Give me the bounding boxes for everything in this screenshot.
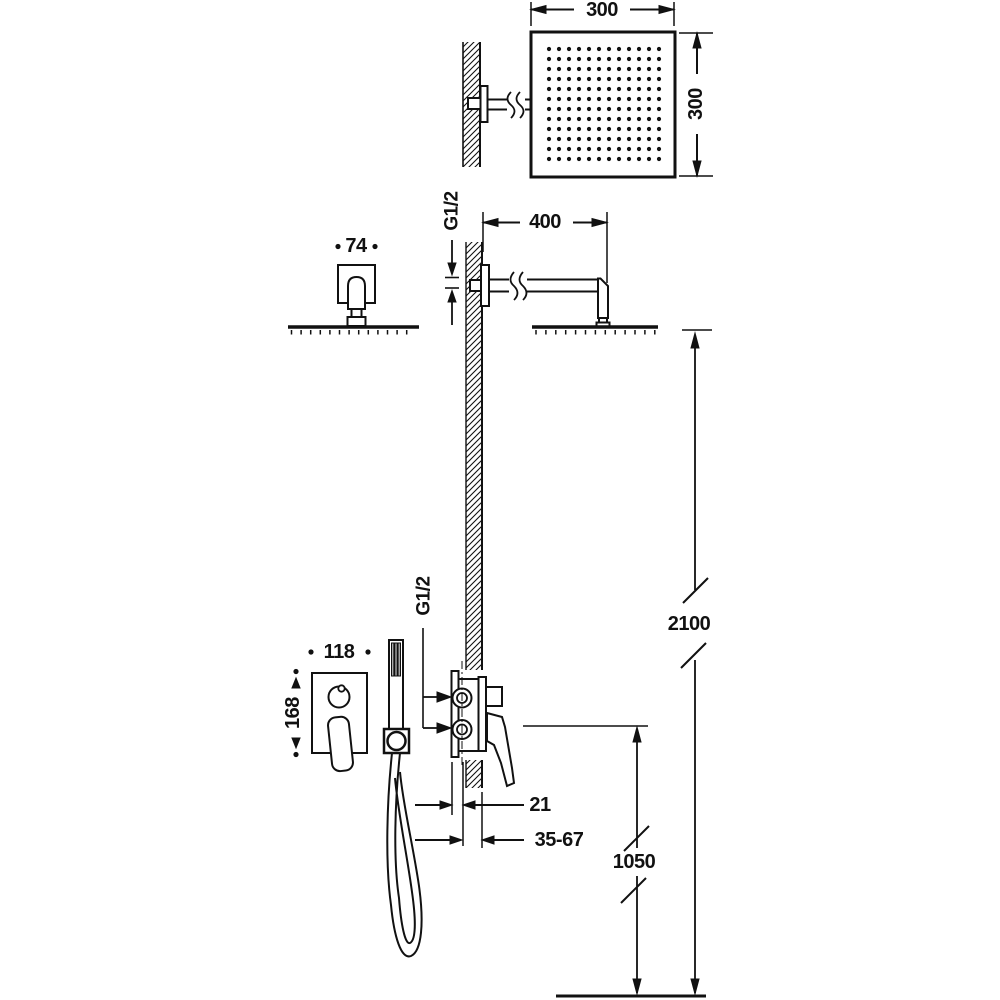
nozzle-dot	[557, 137, 561, 141]
arrowhead	[691, 979, 699, 994]
handshower-nozzle-face	[392, 643, 401, 676]
bracket-ring	[388, 732, 406, 750]
arrowhead	[450, 836, 462, 844]
arrowhead	[448, 263, 456, 275]
nozzle-dot	[597, 157, 601, 161]
nozzle-dot	[617, 77, 621, 81]
nozzle-dot	[647, 147, 651, 151]
nozzle-dot	[627, 157, 631, 161]
arrowhead	[592, 219, 607, 227]
nozzle-dot	[547, 77, 551, 81]
nozzle-dot	[547, 127, 551, 131]
dim-arm-length-label: 400	[527, 212, 563, 232]
dim-wall-offset-label: 21	[527, 795, 552, 815]
nozzle-dot	[607, 137, 611, 141]
nozzle-dot	[587, 147, 591, 151]
nozzle-dot	[647, 87, 651, 91]
valve-front-plate	[479, 677, 487, 751]
nozzle-dot	[637, 97, 641, 101]
nozzle-dot	[557, 107, 561, 111]
nozzle-dot	[647, 57, 651, 61]
nozzle-dot	[637, 137, 641, 141]
nozzle-dot	[577, 107, 581, 111]
arrowhead	[463, 801, 475, 809]
nozzle-dot	[557, 77, 561, 81]
nozzle-dot	[587, 107, 591, 111]
head-nozzle-ticks	[536, 330, 655, 335]
nozzle-dot	[567, 47, 571, 51]
nozzle-dot	[547, 87, 551, 91]
nozzle-dot	[617, 147, 621, 151]
nozzle-dot	[567, 127, 571, 131]
nozzle-dot	[637, 57, 641, 61]
nozzle-dot	[597, 87, 601, 91]
hand-shower	[384, 640, 422, 956]
dimension-dot	[293, 752, 298, 757]
nozzle-dot	[587, 97, 591, 101]
arm-pipe-in-wall	[470, 280, 481, 291]
nozzle-dot	[637, 157, 641, 161]
valve-mounting-plate	[452, 671, 459, 757]
nozzle-dot	[607, 97, 611, 101]
nozzle-dot	[627, 117, 631, 121]
dim-trim-height-label: 168	[283, 695, 303, 731]
nozzle-dot	[597, 97, 601, 101]
arrowhead	[292, 738, 300, 748]
nozzle-dot	[637, 67, 641, 71]
nozzle-dot	[637, 147, 641, 151]
nozzle-dot	[597, 77, 601, 81]
arrowhead	[482, 836, 494, 844]
nozzle-dot	[577, 87, 581, 91]
dimension-head-floor-height	[681, 330, 712, 994]
nozzle-dot	[547, 97, 551, 101]
nozzle-dot	[627, 107, 631, 111]
valve-thread-label: G1/2	[415, 574, 434, 617]
nozzle-dot	[577, 97, 581, 101]
nozzle-dot	[557, 47, 561, 51]
nozzle-dot	[577, 117, 581, 121]
dim-head-height-label: 300	[686, 86, 706, 122]
dim-escutcheon-label: 74	[343, 236, 368, 256]
valve-diverter	[486, 687, 502, 706]
nozzle-dot	[597, 47, 601, 51]
dimension-dot	[293, 669, 298, 674]
nozzle-dot	[567, 147, 571, 151]
nozzle-dot	[587, 137, 591, 141]
nozzle-dot	[607, 127, 611, 131]
arrowhead	[437, 692, 451, 702]
arrowhead	[693, 161, 701, 176]
nozzle-dot	[607, 157, 611, 161]
arrowhead	[292, 678, 300, 688]
nozzle-dot	[577, 77, 581, 81]
arm-escutcheon-front-view	[288, 244, 419, 335]
arrowhead	[659, 6, 674, 14]
arrowhead	[483, 219, 498, 227]
drawing-linework	[0, 0, 1000, 1000]
dimension-dot	[372, 244, 377, 249]
nozzle-dot	[647, 157, 651, 161]
nozzle-dot	[547, 67, 551, 71]
nozzle-dot	[617, 137, 621, 141]
nozzle-dot	[617, 57, 621, 61]
nozzle-dot	[647, 107, 651, 111]
nozzle-dot	[597, 117, 601, 121]
nozzle-dot	[567, 67, 571, 71]
nozzle-dot	[617, 127, 621, 131]
nozzle-dot	[587, 47, 591, 51]
nozzle-dot	[617, 97, 621, 101]
arrowhead	[531, 6, 546, 14]
nozzle-dot	[617, 67, 621, 71]
nozzle-dot	[617, 117, 621, 121]
nozzle-dot	[637, 117, 641, 121]
head-nozzle-ticks	[292, 330, 407, 335]
nozzle-dot	[597, 107, 601, 111]
nozzle-dot	[627, 97, 631, 101]
nozzle-dot	[557, 57, 561, 61]
nozzle-dot	[567, 97, 571, 101]
nozzle-dot	[607, 107, 611, 111]
dimension-dot	[335, 244, 340, 249]
break-slash	[621, 878, 646, 903]
nozzle-dot	[557, 87, 561, 91]
nozzle-dot	[627, 47, 631, 51]
nozzle-dot	[607, 67, 611, 71]
nozzle-dot	[657, 147, 661, 151]
nozzle-dot	[587, 87, 591, 91]
arm-flange	[481, 86, 488, 122]
nozzle-dot	[567, 57, 571, 61]
nozzle-dot	[577, 127, 581, 131]
nozzle-dot	[657, 157, 661, 161]
nozzle-dot	[547, 47, 551, 51]
nozzle-dot	[627, 147, 631, 151]
arrowhead	[437, 723, 451, 733]
nozzle-dot	[637, 77, 641, 81]
nozzle-dot	[617, 107, 621, 111]
break-slash	[681, 643, 706, 668]
nozzle-dot	[557, 117, 561, 121]
nozzle-dot	[567, 137, 571, 141]
nozzle-dot	[627, 127, 631, 131]
nozzle-dot	[607, 117, 611, 121]
nozzle-dot	[637, 107, 641, 111]
nozzle-dot	[627, 77, 631, 81]
nozzle-dot	[657, 137, 661, 141]
nozzle-dot	[647, 67, 651, 71]
dim-install-depth-label: 35-67	[533, 830, 586, 850]
nozzle-dot	[557, 67, 561, 71]
nozzle-dot	[647, 127, 651, 131]
nozzle-dot	[657, 97, 661, 101]
nozzle-dot	[617, 87, 621, 91]
dimension-dot	[365, 649, 370, 654]
dimension-arm-thread	[445, 240, 459, 325]
nozzle-dot	[647, 137, 651, 141]
nozzle-dot	[547, 107, 551, 111]
nozzle-dot	[587, 127, 591, 131]
nozzle-dot	[547, 147, 551, 151]
nozzle-dot	[557, 157, 561, 161]
nozzle-dot	[657, 67, 661, 71]
nozzle-dot	[577, 57, 581, 61]
nozzle-dot	[567, 87, 571, 91]
nozzle-dot	[587, 157, 591, 161]
nozzle-dot	[657, 47, 661, 51]
nozzle-dot	[657, 77, 661, 81]
shower-arm-side-view	[470, 265, 658, 335]
nozzle-dot	[547, 157, 551, 161]
nozzle-dot	[557, 147, 561, 151]
nozzle-dot	[637, 47, 641, 51]
nozzle-dot	[607, 147, 611, 151]
nozzle-dot	[557, 97, 561, 101]
arrowhead	[633, 727, 641, 742]
nozzle-dot	[617, 47, 621, 51]
nozzle-dot	[597, 57, 601, 61]
nozzle-dot	[567, 117, 571, 121]
nozzle-dot	[657, 87, 661, 91]
dimension-dot	[308, 649, 313, 654]
nozzle-dot	[637, 127, 641, 131]
nozzle-dot	[607, 47, 611, 51]
nozzle-dot	[657, 117, 661, 121]
nozzle-dot	[597, 137, 601, 141]
nozzle-dot	[577, 157, 581, 161]
knob-notch	[338, 685, 344, 691]
nozzle-dot	[647, 77, 651, 81]
arrowhead	[693, 33, 701, 48]
arrowhead	[691, 333, 699, 348]
nozzle-dot	[577, 137, 581, 141]
dim-head-floor-height-label: 2100	[666, 614, 713, 634]
nozzle-dot	[647, 97, 651, 101]
nozzle-dot	[547, 137, 551, 141]
nozzle-dot	[657, 107, 661, 111]
rain-head-front-view	[531, 32, 675, 177]
nozzle-dot	[607, 77, 611, 81]
nozzle-dot	[657, 127, 661, 131]
nozzle-dot	[577, 147, 581, 151]
nozzle-dot	[567, 157, 571, 161]
nozzle-dot	[577, 47, 581, 51]
arrowhead	[440, 801, 452, 809]
nozzle-dot	[587, 57, 591, 61]
nozzle-dot	[637, 87, 641, 91]
nozzle-dot	[567, 107, 571, 111]
nozzle-dot	[657, 57, 661, 61]
nozzle-dot	[627, 87, 631, 91]
nozzle-dot	[597, 147, 601, 151]
arrowhead	[633, 979, 641, 994]
arm-flange	[481, 265, 489, 306]
nozzle-dot	[607, 57, 611, 61]
mixer-lever-front	[327, 716, 354, 772]
nozzle-dot	[567, 77, 571, 81]
nozzle-dot	[587, 77, 591, 81]
nozzle-dot	[607, 87, 611, 91]
technical-drawing-canvas: 300 300 74 G1/2 400 2100 118 168 G1/2 21…	[0, 0, 1000, 1000]
mixer-trim-front-view	[308, 649, 370, 771]
arm-thread-label: G1/2	[443, 189, 462, 232]
arm-profile	[348, 277, 365, 309]
nozzle-dot	[577, 67, 581, 71]
nozzle-dot	[597, 67, 601, 71]
nozzle-dot	[547, 117, 551, 121]
nozzle-dot	[627, 67, 631, 71]
dimension-valve-thread	[423, 628, 451, 733]
dim-valve-height-label: 1050	[611, 852, 658, 872]
arm-pipe-in-wall	[468, 98, 481, 109]
nozzle-dot	[647, 117, 651, 121]
arm-elbow	[598, 279, 608, 319]
nozzle-dot	[587, 117, 591, 121]
dim-head-width-label: 300	[584, 0, 620, 20]
arrowhead	[448, 291, 456, 303]
nozzle-dot	[627, 137, 631, 141]
nozzle-dot	[547, 57, 551, 61]
nozzle-dot	[647, 47, 651, 51]
nozzle-dot	[587, 67, 591, 71]
dim-trim-width-label: 118	[322, 642, 357, 662]
nozzle-dot	[617, 157, 621, 161]
nozzle-dot	[557, 127, 561, 131]
nozzle-dot	[597, 127, 601, 131]
hose-outer-edge	[387, 753, 421, 956]
nozzle-dot	[627, 57, 631, 61]
